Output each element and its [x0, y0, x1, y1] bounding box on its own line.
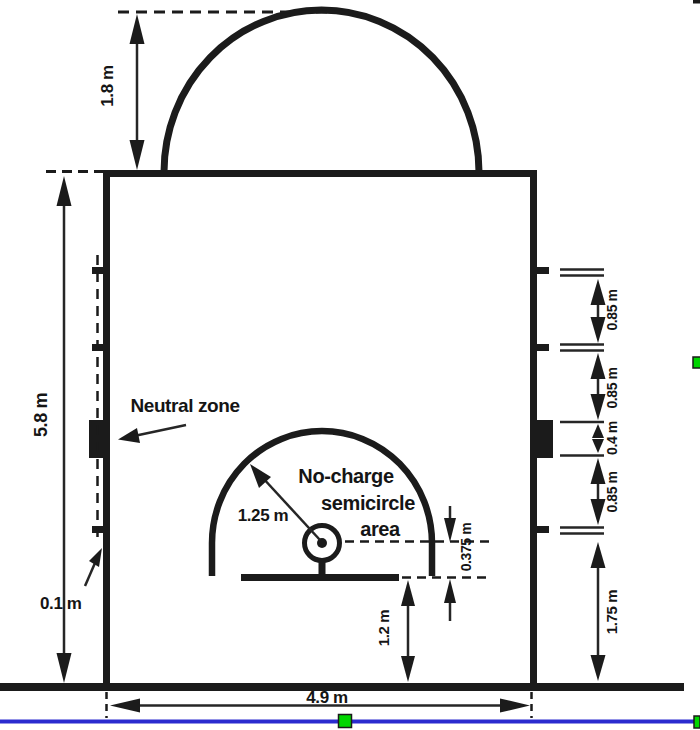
label-no-charge-line1: No-charge — [298, 465, 394, 487]
label-no-charge-radius: 1.25 m — [238, 506, 289, 525]
lane-hash-right-1 — [536, 267, 549, 274]
backboard — [241, 574, 399, 581]
selection-corner-fragment — [693, 0, 700, 4]
annotation-neutral-zone: Neutral zone — [118, 395, 240, 443]
selection-handle-right[interactable] — [693, 357, 700, 368]
label-hash-mark-length: 0.1 m — [40, 594, 82, 613]
dim-lane-spaces: 0.85 m 0.85 m 0.4 m 0.85 m 1.75 m — [560, 270, 620, 682]
label-key-width: 4.9 m — [306, 688, 348, 707]
dim-backboard-to-endline: 1.2 m — [375, 580, 415, 682]
neutral-zone-mark-right — [536, 420, 553, 458]
free-throw-semicircle — [164, 10, 479, 172]
label-no-charge-line2: semicircle — [321, 492, 415, 514]
label-lane-space-2: 0.85 m — [604, 367, 620, 408]
document-canvas: 1.8 m 5.8 m 0.85 m 0.85 m 0.4 m — [0, 0, 700, 730]
lane-hash-right-2 — [536, 344, 549, 351]
label-free-throw-radius: 1.8 m — [98, 65, 117, 107]
dim-hash-mark-length: 0.1 m — [40, 548, 102, 613]
label-lane-space-1: 0.85 m — [604, 289, 620, 330]
lane-hash-right-3 — [536, 526, 549, 533]
label-neutral-zone-width: 0.4 m — [604, 421, 620, 455]
label-lane-space-3: 0.85 m — [604, 471, 620, 512]
label-no-charge-line3: area — [360, 518, 401, 540]
label-backboard-to-endline: 1.2 m — [375, 610, 392, 646]
label-neutral-zone: Neutral zone — [130, 395, 239, 416]
basketball-key-diagram: 1.8 m 5.8 m 0.85 m 0.85 m 0.4 m — [0, 0, 700, 730]
label-endline-space: 1.75 m — [603, 590, 620, 634]
dim-key-width: 4.9 m — [107, 688, 532, 718]
selection-handle-bottom-center[interactable] — [339, 715, 352, 728]
label-ring-to-backboard: 0.375 m — [458, 523, 474, 572]
ring-stem — [319, 559, 326, 576]
dim-free-throw-radius: 1.8 m — [98, 14, 145, 170]
selection-handle-bottom-right[interactable] — [694, 716, 700, 728]
label-key-length: 5.8 m — [31, 393, 51, 437]
dim-ring-to-backboard: 0.375 m — [444, 506, 474, 621]
